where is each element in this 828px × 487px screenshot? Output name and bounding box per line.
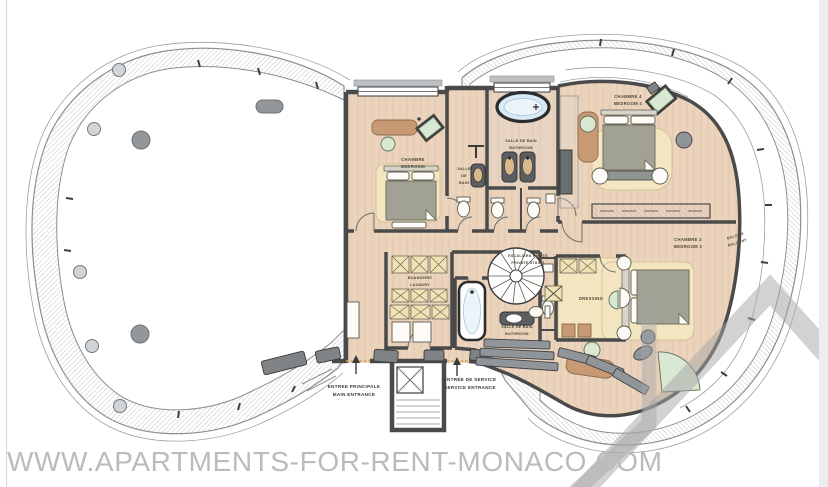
bedroom1-label-fr: CHAMBRE: [401, 157, 425, 162]
page-edge-right: [819, 0, 828, 487]
hall-closet: [347, 302, 359, 338]
entry-bench: [424, 350, 444, 361]
laundry-label-fr: BUANDERIE: [408, 276, 432, 280]
bedroom4-label-en: BEDROOM 4: [614, 101, 642, 106]
website-watermark: WWW.APARTMENTS-FOR-RENT-MONACO.COM: [7, 446, 663, 477]
dressing-label: DRESSING: [579, 296, 603, 301]
left-wing-terrace: [26, 42, 350, 441]
service-entrance-label-en: SERVICE ENTRANCE: [444, 385, 496, 390]
toilet-icon: [458, 201, 470, 217]
pillow: [387, 172, 409, 180]
service-entrance-label-fr: ENTRÉE DE SERVICE: [444, 375, 497, 382]
bedroom3-label-en: BEDROOM 3: [674, 244, 702, 249]
ottoman: [652, 168, 668, 184]
bedroom3-label-fr: CHAMBRE 3: [674, 237, 702, 242]
service-stairwell: [392, 363, 444, 430]
toilet-icon: [529, 307, 543, 318]
bedroom4-label-fr: CHAMBRE 4: [614, 94, 642, 99]
entry-bench: [374, 349, 399, 363]
main-entrance-label-en: MAIN ENTRANCE: [333, 392, 375, 397]
bedroom1-chair: [381, 137, 395, 151]
dressing-drawer: [578, 324, 591, 337]
bedside-table: [617, 256, 631, 270]
bath-lower-label-en: BATHROOM: [505, 332, 528, 336]
stairs-label-fr: ESCALIERS PRIVES: [508, 254, 548, 258]
stairs-label-en: PRIVATE STAIRS: [511, 261, 544, 265]
bath-lower-label-fr: SALLE DE BAIN: [501, 325, 533, 329]
pillow: [631, 116, 655, 124]
washing-machine-icon: [392, 322, 410, 342]
bedroom1-label-en: BEDROOM: [401, 164, 425, 169]
bedroom1-bench: [392, 222, 426, 228]
pillow: [412, 172, 434, 180]
corner-sink: [546, 194, 555, 203]
bath-strip-label-3: BAIN: [459, 181, 469, 185]
bedroom4-stool: [580, 116, 596, 132]
floor-plan-svg: CHAMBRE BEDROOM SALLE DE BAIN SALLE DE B…: [0, 0, 828, 487]
laundry-label-en: LAUNDRY: [410, 283, 430, 287]
floor-plan-image: CHAMBRE BEDROOM SALLE DE BAIN SALLE DE B…: [0, 0, 828, 487]
bedroom4-cabinet: [560, 150, 572, 194]
toilet-icon: [492, 202, 504, 218]
small-sink: [543, 264, 553, 272]
bath-top-label-en: BATHROOM: [509, 146, 532, 150]
bath-strip-label-2: DE: [461, 174, 467, 178]
toilet-icon: [528, 202, 540, 218]
dryer-icon: [413, 322, 431, 342]
ottoman: [592, 168, 608, 184]
pillow: [604, 116, 628, 124]
bath-top-label-fr: SALLE DE BAIN: [505, 139, 537, 143]
bedroom1-desk: [372, 120, 417, 135]
bath-strip-label-1: SALLE: [457, 167, 471, 171]
bedroom4-headboard: [601, 110, 657, 115]
bedroom4-side-table: [676, 132, 692, 148]
main-entrance-label-fr: ENTREE PRINCIPALE: [328, 384, 381, 389]
bedside-table: [617, 326, 631, 340]
dressing-drawer: [562, 324, 575, 337]
